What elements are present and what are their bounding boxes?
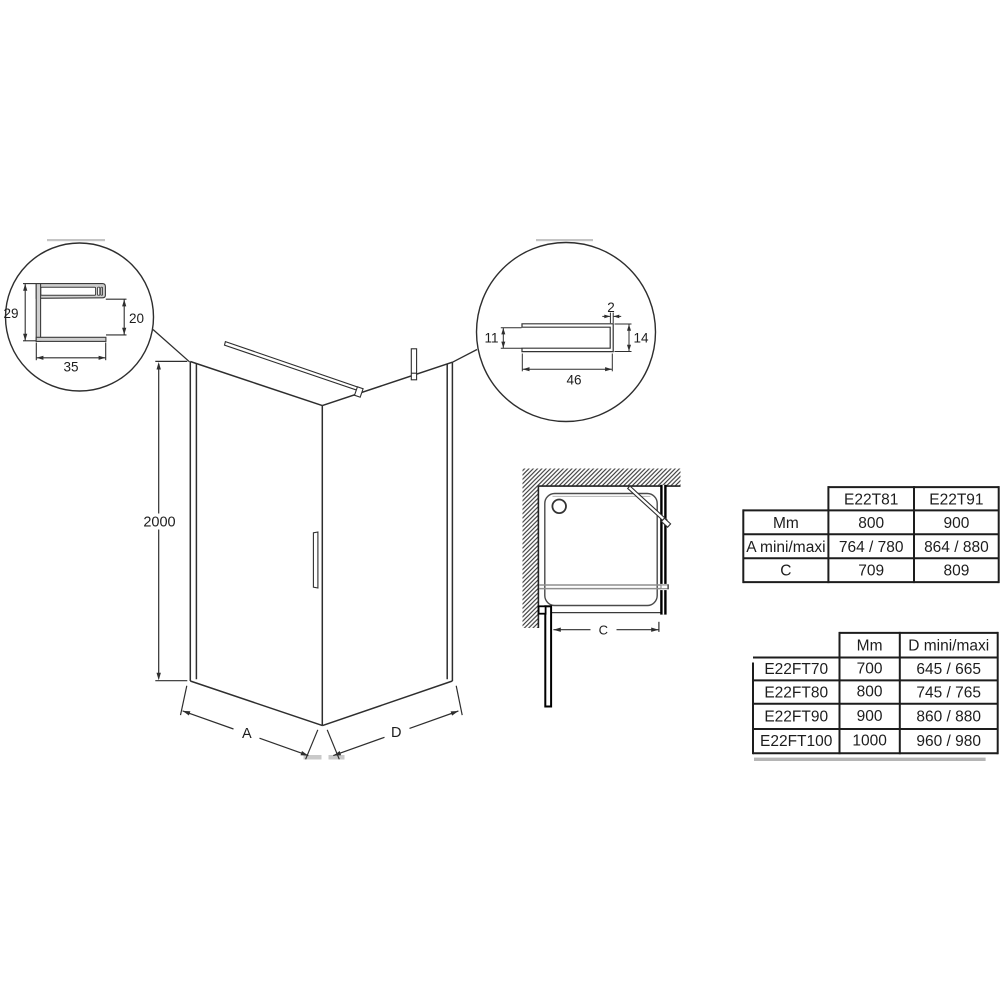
svg-text:2000: 2000 bbox=[143, 515, 175, 531]
svg-text:Mm: Mm bbox=[857, 638, 883, 655]
svg-text:20: 20 bbox=[129, 311, 144, 326]
svg-text:2: 2 bbox=[607, 300, 615, 315]
svg-text:900: 900 bbox=[943, 515, 969, 532]
svg-text:14: 14 bbox=[633, 331, 649, 346]
svg-text:645 / 665: 645 / 665 bbox=[916, 661, 981, 678]
svg-text:E22FT70: E22FT70 bbox=[764, 661, 828, 678]
svg-text:E22FT80: E22FT80 bbox=[764, 684, 828, 701]
svg-text:C: C bbox=[599, 622, 608, 637]
svg-text:709: 709 bbox=[858, 563, 884, 580]
svg-text:D mini/maxi: D mini/maxi bbox=[908, 638, 989, 655]
svg-text:700: 700 bbox=[857, 660, 883, 677]
svg-text:764 / 780: 764 / 780 bbox=[839, 539, 904, 556]
svg-text:A mini/maxi: A mini/maxi bbox=[746, 539, 825, 556]
svg-text:E22T91: E22T91 bbox=[929, 491, 983, 508]
svg-text:900: 900 bbox=[857, 708, 883, 725]
svg-text:29: 29 bbox=[3, 306, 18, 321]
svg-text:Mm: Mm bbox=[773, 515, 799, 532]
svg-text:C: C bbox=[780, 563, 791, 580]
svg-text:1000: 1000 bbox=[852, 732, 887, 749]
svg-text:E22FT100: E22FT100 bbox=[760, 733, 833, 750]
svg-text:809: 809 bbox=[943, 563, 969, 580]
svg-text:960 / 980: 960 / 980 bbox=[916, 733, 981, 750]
svg-text:A: A bbox=[242, 726, 252, 742]
svg-text:E22T81: E22T81 bbox=[844, 491, 898, 508]
svg-text:800: 800 bbox=[857, 684, 883, 701]
svg-text:E22FT90: E22FT90 bbox=[764, 709, 828, 726]
svg-text:46: 46 bbox=[566, 373, 581, 388]
svg-text:35: 35 bbox=[63, 360, 78, 375]
svg-text:D: D bbox=[391, 725, 401, 741]
svg-text:800: 800 bbox=[858, 515, 884, 532]
svg-text:11: 11 bbox=[484, 331, 498, 346]
svg-text:864 / 880: 864 / 880 bbox=[924, 539, 989, 556]
svg-text:745 / 765: 745 / 765 bbox=[916, 684, 981, 701]
svg-text:860 / 880: 860 / 880 bbox=[916, 709, 981, 726]
